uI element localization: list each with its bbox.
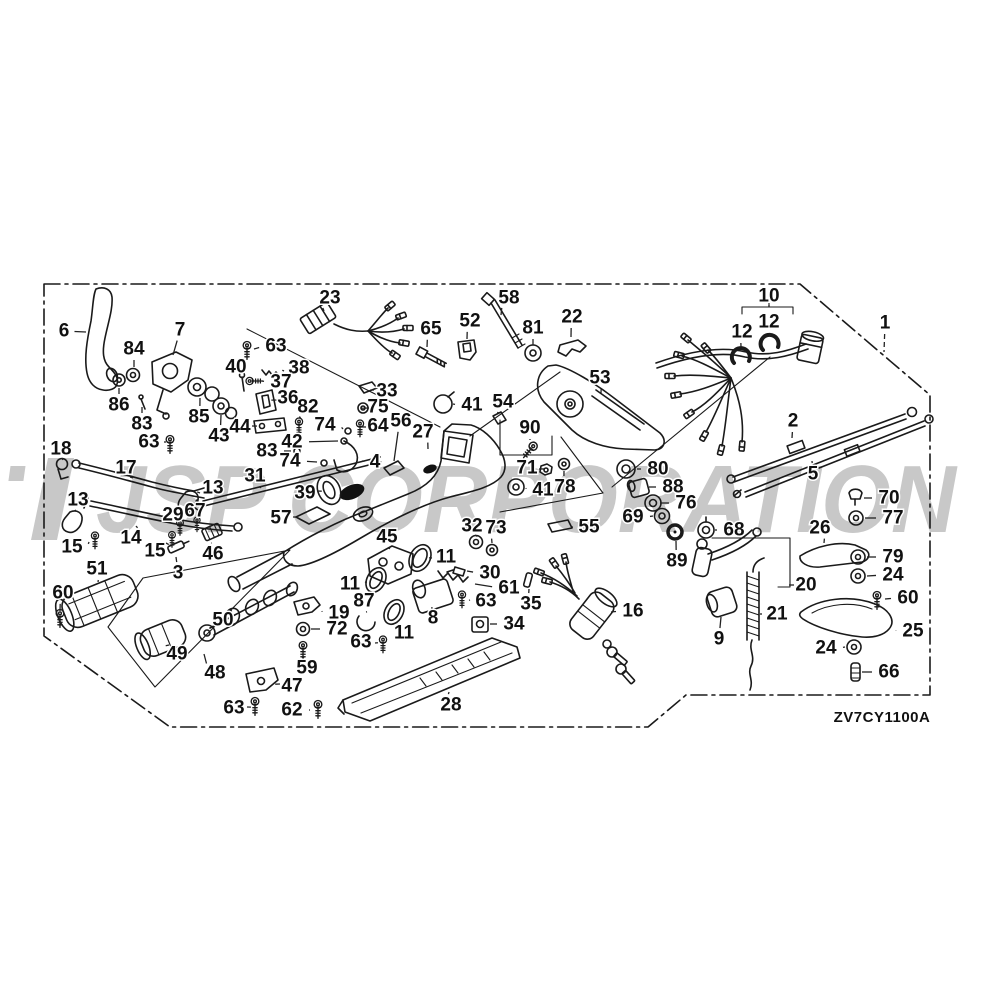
part-callout-11: 11 <box>436 547 457 568</box>
part-callout-38: 38 <box>288 358 309 379</box>
part-callout-81: 81 <box>522 318 544 339</box>
part-callout-36: 36 <box>277 388 298 409</box>
part-callout-87: 87 <box>353 591 374 612</box>
part-callout-5: 5 <box>808 464 819 485</box>
part-callout-35: 35 <box>520 594 542 615</box>
part-callout-17: 17 <box>115 458 136 479</box>
part-callout-20: 20 <box>795 575 816 596</box>
part-callout-30: 30 <box>479 563 500 584</box>
diagram-code: ZV7CY1100A <box>834 709 931 726</box>
callout-leader-42 <box>309 441 338 442</box>
ignition-switch-16 <box>533 554 636 686</box>
part-callout-50: 50 <box>212 610 233 631</box>
part-callout-28: 28 <box>440 695 461 716</box>
part-callout-11: 11 <box>394 623 415 644</box>
callout-leader-60 <box>885 598 891 599</box>
part-callout-63: 63 <box>223 698 244 719</box>
callout-leader-3 <box>176 557 177 562</box>
wire-harness-23 <box>300 301 413 360</box>
callout-leader-11 <box>365 582 367 583</box>
part-callout-85: 85 <box>188 407 210 428</box>
part-callout-40: 40 <box>225 357 246 378</box>
part-callout-57: 57 <box>270 508 291 529</box>
part-callout-64: 64 <box>367 416 389 437</box>
part-callout-10: 10 <box>758 286 779 307</box>
part-callout-3: 3 <box>173 563 184 584</box>
callout-leader-74 <box>307 461 317 462</box>
part-callout-6: 6 <box>59 321 70 342</box>
part-callout-66: 66 <box>878 662 899 683</box>
part-callout-78: 78 <box>554 477 575 498</box>
part-callout-8: 8 <box>428 608 439 629</box>
part-callout-63: 63 <box>350 632 371 653</box>
part-callout-34: 34 <box>503 614 525 635</box>
part-callout-26: 26 <box>809 518 830 539</box>
part-callout-63: 63 <box>265 336 286 357</box>
part-callout-51: 51 <box>86 559 108 580</box>
part-callout-41: 41 <box>532 480 554 501</box>
part-callout-16: 16 <box>622 601 643 622</box>
part-callout-44: 44 <box>229 417 251 438</box>
part-callout-24: 24 <box>815 638 837 659</box>
part-callout-43: 43 <box>208 426 229 447</box>
parts-diagram-page: JSP CORPORATION <box>0 0 1000 1000</box>
part-callout-74: 74 <box>279 451 301 472</box>
part-callout-77: 77 <box>882 508 903 529</box>
part-callout-49: 49 <box>166 644 187 665</box>
part-callout-24: 24 <box>882 565 904 586</box>
part-callout-4: 4 <box>370 452 381 473</box>
part-callout-29: 29 <box>162 505 183 526</box>
part-callout-71: 71 <box>516 458 538 479</box>
part-callout-27: 27 <box>412 422 433 443</box>
part-callout-70: 70 <box>878 488 899 509</box>
part-callout-60: 60 <box>897 588 918 609</box>
part-callout-7: 7 <box>175 320 186 341</box>
part-callout-15: 15 <box>61 537 83 558</box>
part-callout-58: 58 <box>498 288 519 309</box>
part-callout-18: 18 <box>50 439 71 460</box>
part-callout-41: 41 <box>461 395 483 416</box>
part-callout-46: 46 <box>202 544 223 565</box>
callout-leader-9 <box>720 617 721 628</box>
callout-leader-1 <box>884 334 885 352</box>
part-callout-74: 74 <box>314 415 336 436</box>
part-callout-86: 86 <box>108 395 129 416</box>
callout-leader-15 <box>88 542 89 544</box>
part-callout-1: 1 <box>880 313 891 334</box>
callout-leader-45 <box>389 548 390 549</box>
part-callout-39: 39 <box>294 483 315 504</box>
part-callout-62: 62 <box>281 700 302 721</box>
part-callout-12: 12 <box>758 312 779 333</box>
part-callout-53: 53 <box>589 368 610 389</box>
callout-leader-74 <box>342 427 343 429</box>
part-callout-83: 83 <box>256 441 277 462</box>
part-callout-48: 48 <box>204 663 225 684</box>
part-callout-21: 21 <box>766 604 788 625</box>
part-callout-72: 72 <box>326 619 347 640</box>
watermark-logo-dot <box>8 466 25 481</box>
part-callout-63: 63 <box>475 591 496 612</box>
part-callout-89: 89 <box>666 551 687 572</box>
part-callout-76: 76 <box>675 493 696 514</box>
part-callout-90: 90 <box>519 418 540 439</box>
part-callout-9: 9 <box>714 629 725 650</box>
part-callout-22: 22 <box>561 307 582 328</box>
callout-leader-6 <box>74 331 86 332</box>
part-callout-63: 63 <box>138 432 159 453</box>
part-callout-14: 14 <box>120 528 142 549</box>
part-callout-52: 52 <box>459 311 480 332</box>
part-callout-69: 69 <box>622 507 643 528</box>
wire-harness-10 <box>656 330 824 456</box>
part-callout-45: 45 <box>376 527 398 548</box>
part-callout-13: 13 <box>202 478 223 499</box>
part-callout-25: 25 <box>902 621 924 642</box>
part-callout-47: 47 <box>281 676 302 697</box>
part-callout-12: 12 <box>731 322 752 343</box>
part-callout-31: 31 <box>244 466 266 487</box>
part-callout-68: 68 <box>723 520 744 541</box>
part-callout-23: 23 <box>319 288 340 309</box>
callout-leader-61 <box>475 584 492 587</box>
part-callout-15: 15 <box>144 541 166 562</box>
part-callout-32: 32 <box>461 516 482 537</box>
callout-leader-16 <box>611 611 616 612</box>
part-callout-75: 75 <box>367 397 389 418</box>
part-callout-61: 61 <box>498 578 520 599</box>
callout-leader-63 <box>254 347 259 349</box>
part-callout-60: 60 <box>52 583 73 604</box>
part-callout-42: 42 <box>281 432 302 453</box>
part-callout-65: 65 <box>420 319 442 340</box>
part-callout-54: 54 <box>492 392 514 413</box>
callout-leader-58 <box>501 308 502 315</box>
part-callout-84: 84 <box>123 339 145 360</box>
part-callout-13: 13 <box>67 490 88 511</box>
part-callout-73: 73 <box>485 518 506 539</box>
part-callout-55: 55 <box>578 517 600 538</box>
callout-leader-24 <box>867 575 876 576</box>
exploded-parts-diagram: JSP CORPORATION <box>0 0 1000 1000</box>
part-callout-67: 67 <box>184 501 205 522</box>
part-callout-2: 2 <box>788 411 799 432</box>
callout-leader-30 <box>467 571 473 572</box>
part-callout-56: 56 <box>390 411 411 432</box>
